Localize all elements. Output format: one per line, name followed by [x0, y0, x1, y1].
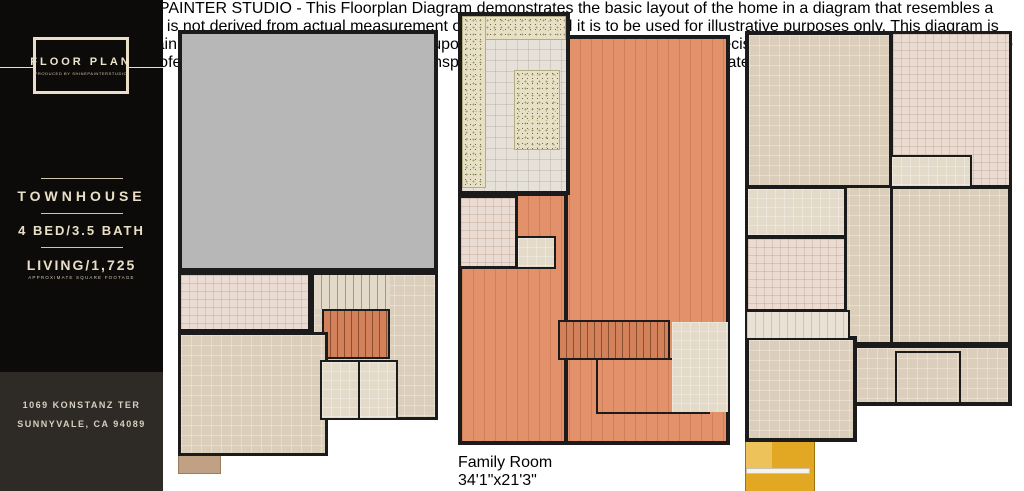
- kitchen-island: [514, 70, 560, 150]
- bedroom-window: [178, 479, 234, 483]
- closet-left-room: [320, 360, 360, 420]
- walkin-closet-room: [745, 186, 847, 238]
- property-type: TOWNHOUSE: [0, 188, 163, 204]
- bathroom-room: [745, 236, 847, 312]
- stair-landing: [672, 322, 728, 412]
- address-line-2: SUNNYVALE, CA 94089: [0, 415, 163, 434]
- closet-bottom-room: [745, 310, 850, 340]
- bedroom-bottom-room: [745, 336, 857, 442]
- bed-bath-count: 4 BED/3.5 BATH: [0, 223, 163, 238]
- address-line-1: 1069 KONSTANZ TER: [0, 396, 163, 415]
- property-summary: TOWNHOUSE 4 BED/3.5 BATH LIVING/1,725 AP…: [0, 178, 163, 280]
- bathroom-door-arc: [178, 453, 204, 479]
- primary-bedroom-room: [745, 31, 892, 188]
- logo-title: FLOOR PLAN: [30, 56, 132, 68]
- closet-right-room: [358, 360, 398, 420]
- first-floor-plan: Garage 20'1"x19'7" Foyer Entry Bathroom …: [178, 30, 438, 456]
- divider: [41, 213, 123, 214]
- family-room-label: Family Room 34'1"x21'3": [458, 454, 735, 490]
- floor-plan-logo: FLOOR PLAN PRODUCED BY SHINEPAINTERSTUDI…: [33, 37, 129, 94]
- logo-subtitle: PRODUCED BY SHINEPAINTERSTUDIO: [35, 71, 128, 76]
- stairs: [895, 351, 961, 406]
- sqft-note: APPROXIMATE SQUARE FOOTAGE: [0, 275, 163, 280]
- bed-icon: [745, 439, 815, 491]
- property-address: 1069 KONSTANZ TER SUNNYVALE, CA 94089: [0, 396, 163, 434]
- bedroom-room: [178, 332, 328, 456]
- divider: [41, 247, 123, 248]
- second-floor-plan: DW Kitchen Refrigerator Cabinets Family …: [458, 12, 735, 452]
- bedroom-right-room: [890, 186, 1012, 348]
- bathroom-room: [458, 195, 518, 269]
- divider: [41, 178, 123, 179]
- third-floor-plan: Primary Bedroom 12'4"x12'2" Primary Bath…: [745, 31, 1012, 445]
- closet-top-room: [890, 155, 972, 188]
- stairs-upper: [558, 320, 670, 360]
- counter-left: [462, 16, 486, 188]
- sidebar: FLOOR PLAN PRODUCED BY SHINEPAINTERSTUDI…: [0, 0, 163, 491]
- stairs-upper-run: [314, 275, 390, 309]
- storage-room: [516, 236, 556, 269]
- garage-room: [178, 30, 438, 272]
- entry-door-gap: [178, 483, 182, 491]
- stairs: [322, 309, 390, 359]
- living-sqft: LIVING/1,725: [0, 257, 163, 273]
- floor-plan-poster: FLOOR PLAN PRODUCED BY SHINEPAINTERSTUDI…: [0, 0, 1024, 491]
- bathroom-room: [178, 272, 311, 332]
